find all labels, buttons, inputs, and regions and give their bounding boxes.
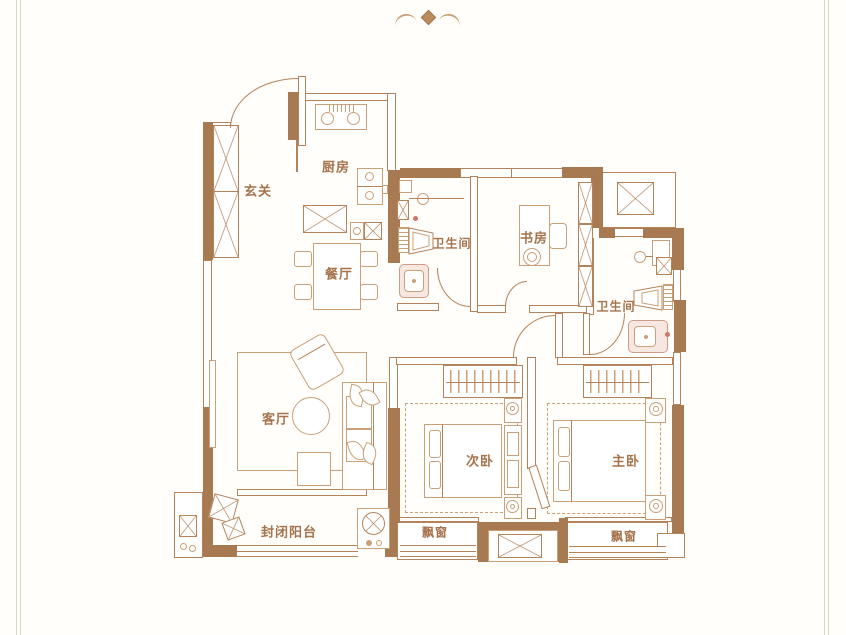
wardrobe [583,365,652,398]
frame-line [824,0,825,635]
shower [633,285,663,311]
faucet-stem [646,256,653,257]
room-label-master: 主卧 [612,451,640,470]
towel-bar [412,198,464,199]
coffee-table [292,397,330,435]
outer-wall [203,545,237,557]
outer-wall [643,228,672,238]
sink-drain [365,191,374,200]
side-table [297,452,331,486]
stove-burner [321,112,334,125]
frame-line [20,0,21,635]
window [673,268,681,302]
wall-column [578,224,593,266]
room-label-bath1: 卫生间 [432,235,471,252]
room-label-bath2: 卫生间 [596,298,635,315]
foyer-cabinet [213,191,239,258]
wings-emblem-icon [392,8,464,30]
sink-drain [412,279,416,283]
faucet [417,193,429,205]
foyer-cabinet [213,125,239,192]
lamp [506,402,519,415]
balcony-window [237,545,358,557]
sink-divider [357,186,383,187]
balcony-slider [237,489,367,496]
outer-wall [599,228,615,238]
window [614,228,644,237]
entry-door-arc [230,78,298,128]
room-label-balcony: 封闭阳台 [261,522,317,541]
sink-drain [365,172,374,181]
dining-chair [360,251,378,267]
door-leaf [583,313,590,355]
stove-burner [347,112,360,125]
outer-wall [203,122,213,260]
lamp [506,500,519,513]
ac-unit [617,182,654,215]
armchair-seam [298,344,325,360]
frame-line [828,0,829,635]
wall [396,357,517,365]
tv-cabinet [209,360,216,448]
wall [527,357,536,469]
room-label-foyer: 玄关 [244,181,272,200]
bay-window-glass [569,546,666,558]
room-label-living: 客厅 [262,409,290,428]
room-label-bay-left: 飘窗 [422,524,448,541]
lamp [649,402,663,416]
toilet-drain [644,335,648,339]
dresser-drawer [507,460,519,488]
outer-wall [672,228,684,270]
wall [387,93,396,171]
room-label-study: 书房 [520,228,548,247]
bed-headboard [442,424,443,498]
sink-faucet [382,185,388,194]
bed-headboard [571,420,572,502]
frame-line [16,0,17,635]
wall [300,93,390,101]
dresser-drawer [507,432,519,456]
outer-wall [400,168,460,178]
wall-column [578,266,593,307]
pillow [558,427,570,457]
wall [388,408,400,523]
washer-knob [376,540,382,546]
pillow [429,430,441,458]
floor-plan-canvas: 玄关 厨房 餐厅 卫生间 书房 卫生间 客厅 封闭阳台 次卧 主卧 飘窗 飘窗 [0,0,846,635]
door-arc [590,313,625,355]
dining-chair [294,284,312,300]
entry-door-leaf [298,76,306,146]
bay-window-glass [400,545,476,557]
floor-drain [413,216,418,221]
ac-unit [498,534,542,558]
outer-wall [672,405,684,533]
wall-column [578,182,593,224]
stove-grill [329,105,355,112]
washer-knob [366,540,372,546]
duct-shaft [656,257,672,275]
bathroom-cabinet [399,180,412,193]
wall [477,305,506,313]
lamp [649,499,663,513]
outer-wall [562,167,603,178]
appliance-knob [353,227,361,235]
faucet [634,251,646,263]
right-wing-icon [438,12,462,28]
ac-unit [179,515,197,537]
door-arc [437,268,470,307]
kitchen-counter [364,222,382,240]
wall [397,303,439,311]
emblem-core-icon [421,10,437,26]
kitchen-island [303,205,347,233]
outer-wall [674,300,686,352]
room-label-dining: 餐厅 [325,264,353,283]
washer-drum [362,512,385,535]
bathtub [408,227,434,255]
dining-chair [294,251,312,267]
room-label-bay-right: 飘窗 [611,528,637,545]
pillow [429,461,441,489]
dining-chair [360,284,378,300]
room-label-bedroom2: 次卧 [466,451,494,470]
window-mullion [511,169,512,177]
study-chair [549,223,567,249]
wall [557,357,673,365]
pipe [189,545,196,552]
window [673,352,681,405]
shower-panel [663,284,673,310]
pillow [558,461,570,491]
ceiling-light [523,248,541,266]
floor-drain [665,332,670,337]
door-leaf [555,313,563,358]
left-wing-icon [393,12,417,28]
room-label-kitchen: 厨房 [322,157,350,176]
wardrobe [443,365,523,398]
door-arc [513,315,555,357]
pipe [180,543,187,550]
wall [527,508,536,519]
duct-shaft [397,200,409,220]
door-arc [505,281,527,307]
